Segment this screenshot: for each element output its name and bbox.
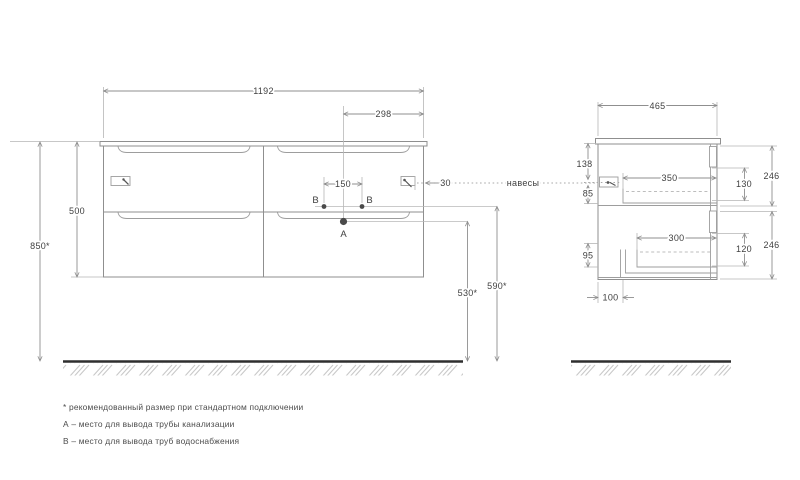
dim-bottom-drawer-inner: 120 — [712, 234, 752, 267]
outlet-b-left-dot — [322, 204, 327, 209]
dim-outlet-b-spacing-value: 150 — [335, 179, 351, 189]
hangers-label: навесы — [507, 178, 539, 188]
dim-bottom-clearance: 95 — [583, 244, 598, 268]
outlet-b-right-dot — [360, 204, 365, 209]
outlet-a-dot — [340, 218, 347, 225]
dim-top-drawer-inner: 130 — [712, 168, 752, 201]
dim-outlet-a-height: 530* — [458, 222, 478, 362]
dim-front-width-value: 1192 — [253, 86, 274, 96]
dim-bottom-clearance-value: 95 — [583, 251, 594, 261]
dim-right-section-value: 298 — [376, 109, 392, 119]
dim-total-height-value: 850* — [30, 241, 50, 251]
dim-bottom-drawer-depth-value: 300 — [669, 233, 685, 243]
note-recommended-size: * рекомендованный размер при стандартном… — [63, 402, 303, 412]
dim-pipe-offset: 100 — [587, 280, 634, 303]
side-top-drawer-bracket — [710, 147, 717, 168]
dim-top-to-hanger-value: 138 — [577, 159, 593, 169]
dim-bottom-front-height-value: 246 — [764, 240, 780, 250]
dim-cabinet-height: 500 — [10, 142, 103, 278]
dim-pipe-offset-value: 100 — [603, 293, 619, 303]
floor-left-hatch — [63, 363, 463, 376]
dim-top-drawer-depth-value: 350 — [662, 173, 678, 183]
side-bottom-drawer-bracket — [710, 211, 717, 233]
side-cabinet-outline — [598, 144, 717, 280]
note-point-b: В – место для вывода труб водоснабжения — [63, 436, 239, 446]
dim-outlet-a-height-value: 530* — [458, 288, 478, 298]
side-view: 465 138 85 350 130 — [577, 101, 780, 303]
outlet-a-label: A — [340, 229, 347, 240]
outlet-b-left-label: B — [312, 195, 318, 206]
floor-left — [63, 362, 463, 376]
technical-drawing-page: B B A 1192 298 500 850* — [0, 0, 800, 480]
front-view: B B A 1192 298 500 850* — [10, 86, 598, 361]
vanity-dimension-drawing: B B A 1192 298 500 850* — [0, 0, 800, 480]
dim-top-drawer-inner-value: 130 — [736, 179, 752, 189]
dim-cabinet-height-value: 500 — [69, 206, 85, 216]
outlet-b-right-label: B — [366, 195, 372, 206]
floor-right — [571, 362, 731, 376]
dim-hanger-to-drawer-value: 85 — [583, 189, 594, 199]
dim-hanger-to-drawer: 85 — [583, 186, 598, 204]
dim-outlet-b-height: 590* — [487, 207, 507, 362]
side-countertop — [596, 139, 721, 145]
front-hanger-mark-left — [111, 177, 130, 186]
dim-bottom-drawer-inner-value: 120 — [736, 244, 752, 254]
dim-top-front-height: 246 — [720, 146, 779, 206]
dim-outlet-b-height-value: 590* — [487, 281, 507, 291]
dim-top-to-hanger: 138 — [577, 144, 596, 180]
front-countertop — [100, 142, 427, 147]
dim-total-height: 850* — [30, 142, 50, 361]
dim-hanger-offset-value: 30 — [440, 178, 451, 188]
note-point-a: А – место для вывода трубы канализации — [63, 419, 235, 429]
side-hanger-mark — [584, 177, 621, 187]
dim-depth-value: 465 — [650, 101, 666, 111]
dim-depth: 465 — [598, 101, 717, 136]
footnotes: * рекомендованный размер при стандартном… — [63, 402, 303, 446]
hangers-leader: 30 навесы — [417, 178, 598, 188]
dim-right-section: 298 — [344, 109, 424, 119]
floor-right-hatch — [571, 363, 731, 376]
dim-top-front-height-value: 246 — [764, 171, 780, 181]
